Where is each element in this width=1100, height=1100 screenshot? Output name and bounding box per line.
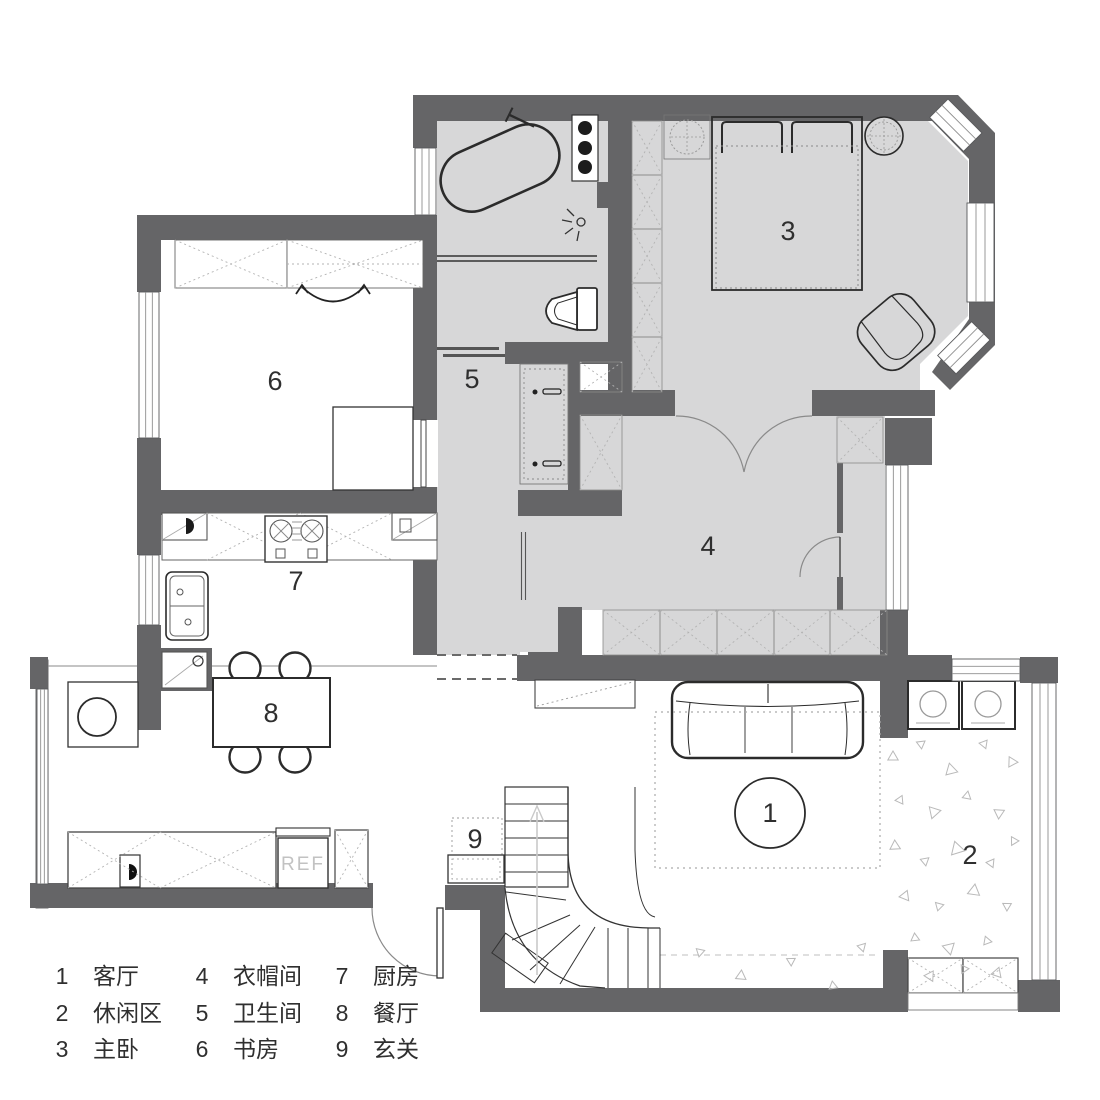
legend-name: 餐厅 (373, 1000, 419, 1026)
room-label-leisure: 2 (962, 840, 977, 870)
room-label-master: 3 (780, 216, 795, 246)
floor-plan-canvas: REF (0, 0, 1100, 1100)
side-counter (68, 682, 138, 747)
room-label-closet: 4 (700, 531, 715, 561)
legend-num: 9 (336, 1036, 349, 1062)
vanity-double-sink (520, 364, 568, 484)
plant-pot (865, 117, 903, 155)
legend-name: 卫生间 (233, 1000, 302, 1026)
legend-num: 3 (56, 1036, 69, 1062)
kitchen-sink (166, 572, 208, 640)
desk (333, 407, 413, 490)
stove (265, 516, 327, 562)
legend-name: 厨房 (373, 963, 419, 989)
washing-machines (908, 681, 1015, 729)
room-label-kitchen: 7 (288, 566, 303, 596)
kitchen-corner-cabinet (162, 652, 207, 688)
legend-name: 书房 (233, 1036, 279, 1062)
legend-name: 玄关 (373, 1036, 419, 1062)
fridge-label: REF (281, 854, 325, 875)
legend-num: 8 (336, 1000, 349, 1026)
legend-num: 4 (196, 963, 209, 989)
stairs (492, 787, 660, 988)
study-pocket-door (421, 420, 426, 487)
legend-num: 6 (196, 1036, 209, 1062)
round-tray (78, 698, 116, 736)
room-label-living: 1 (762, 798, 777, 828)
legend-num: 7 (336, 963, 349, 989)
room-label-dining: 8 (263, 698, 278, 728)
legend-num: 5 (196, 1000, 209, 1026)
legend-name: 休闲区 (93, 1000, 162, 1026)
bath-sliding-door (437, 347, 499, 350)
sofa (672, 682, 863, 758)
legend-num: 2 (56, 1000, 69, 1026)
shower-shelf (572, 115, 598, 181)
legend-num: 1 (56, 963, 69, 989)
room-label-entry: 9 (467, 824, 482, 854)
legend-name: 主卧 (93, 1036, 139, 1062)
legend: 1 客厅 2 休闲区 3 主卧 4 衣帽间 5 卫生间 6 书房 7 厨房 8 … (56, 963, 419, 1062)
legend-name: 衣帽间 (233, 963, 302, 989)
legend-name: 客厅 (93, 963, 139, 989)
floor-plan-page: REF (0, 0, 1100, 1100)
refrigerator: REF (276, 828, 330, 888)
tv-cabinet (535, 680, 635, 708)
room-label-study: 6 (267, 366, 282, 396)
room-label-bath: 5 (464, 364, 479, 394)
